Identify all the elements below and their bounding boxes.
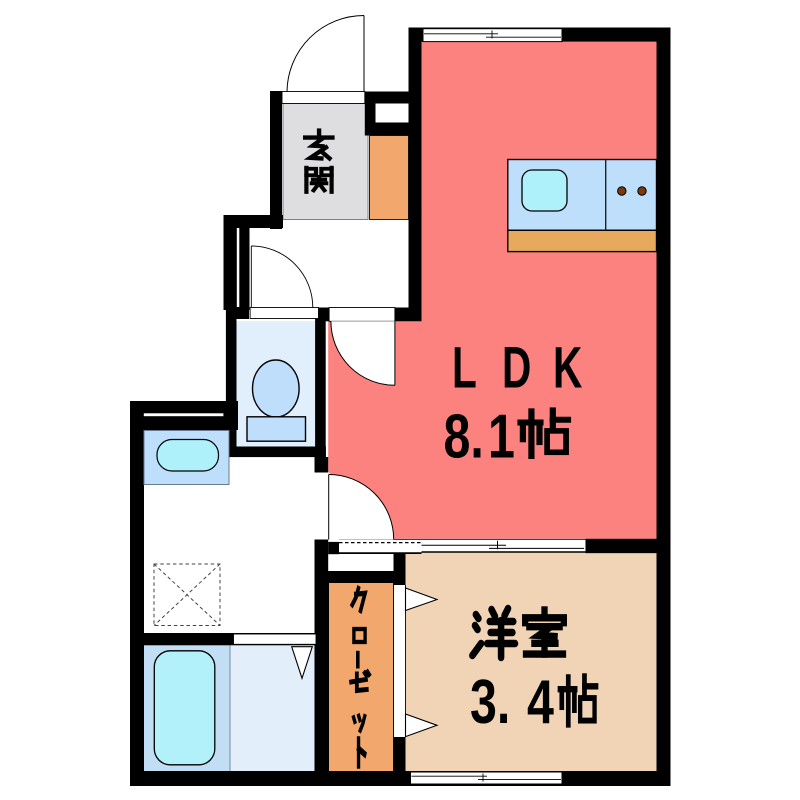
- svg-text:1: 1: [488, 402, 515, 471]
- svg-text:8.: 8.: [444, 402, 484, 471]
- svg-text:L: L: [452, 335, 477, 400]
- svg-text:D: D: [502, 335, 531, 400]
- svg-text:3.: 3.: [470, 667, 510, 736]
- svg-text:4: 4: [527, 667, 554, 736]
- svg-text:K: K: [553, 335, 582, 400]
